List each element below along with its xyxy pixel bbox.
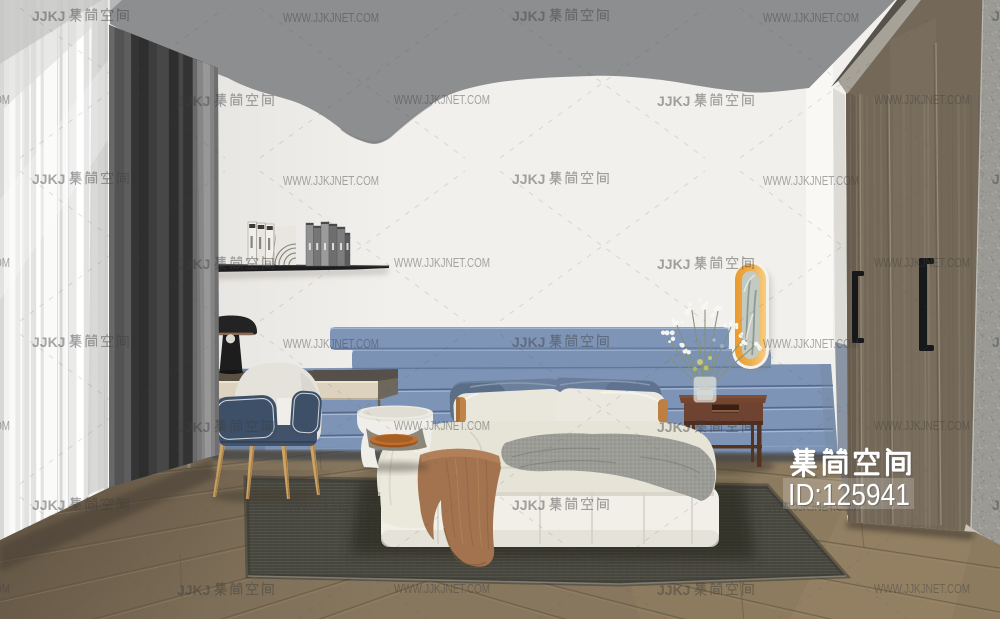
svg-text:ID:125941: ID:125941	[788, 478, 910, 512]
